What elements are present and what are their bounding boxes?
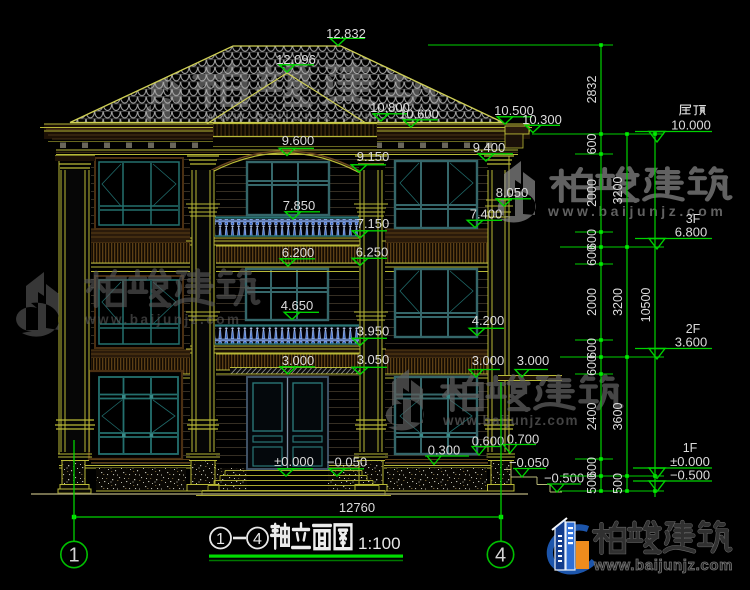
svg-text:2000: 2000 — [585, 288, 599, 316]
svg-text:www.baijunjz.com: www.baijunjz.com — [442, 413, 579, 428]
svg-text:±0.000: ±0.000 — [274, 454, 314, 469]
svg-text:−0.500: −0.500 — [670, 468, 710, 483]
svg-text:10.300: 10.300 — [522, 112, 562, 127]
svg-text:2400: 2400 — [585, 403, 599, 431]
svg-text:10500: 10500 — [639, 288, 653, 323]
svg-text:1: 1 — [68, 545, 79, 567]
svg-text:0.300: 0.300 — [428, 443, 461, 458]
svg-text:7.400: 7.400 — [470, 207, 503, 222]
svg-text:−0.050: −0.050 — [509, 455, 549, 470]
svg-text:12.096: 12.096 — [276, 52, 316, 67]
svg-text:600: 600 — [585, 134, 599, 155]
svg-text:1: 1 — [216, 531, 225, 548]
svg-text:3.000: 3.000 — [282, 353, 315, 368]
svg-text:6.800: 6.800 — [675, 225, 708, 240]
svg-text:6.200: 6.200 — [282, 245, 315, 260]
svg-text:2000: 2000 — [585, 179, 599, 207]
svg-text:4: 4 — [495, 545, 506, 567]
svg-text:6.250: 6.250 — [356, 245, 389, 260]
svg-text:9.600: 9.600 — [282, 133, 315, 148]
svg-text:3.000: 3.000 — [472, 353, 505, 368]
svg-text:500: 500 — [611, 473, 625, 494]
svg-text:10.600: 10.600 — [399, 107, 439, 122]
svg-text:3600: 3600 — [611, 403, 625, 431]
svg-text:−0.500: −0.500 — [544, 471, 584, 486]
svg-text:1F: 1F — [683, 441, 698, 455]
svg-text:3.600: 3.600 — [675, 335, 708, 350]
svg-text:4: 4 — [253, 531, 262, 548]
svg-text:4.650: 4.650 — [281, 298, 314, 313]
svg-text:7.150: 7.150 — [357, 216, 390, 231]
svg-text:3200: 3200 — [611, 288, 625, 316]
svg-text:8.050: 8.050 — [496, 185, 529, 200]
svg-text:www.baijunjz.com: www.baijunjz.com — [84, 312, 242, 327]
svg-text:1:100: 1:100 — [358, 534, 401, 553]
svg-text:3200: 3200 — [611, 177, 625, 205]
svg-text:9.400: 9.400 — [473, 140, 506, 155]
svg-text:600: 600 — [585, 245, 599, 266]
svg-text:600: 600 — [585, 355, 599, 376]
svg-text:4.200: 4.200 — [472, 313, 505, 328]
svg-text:12.832: 12.832 — [326, 26, 366, 41]
svg-text:0.700: 0.700 — [507, 432, 540, 447]
svg-text:0.600: 0.600 — [472, 434, 505, 449]
svg-text:−0.050: −0.050 — [327, 455, 367, 470]
svg-text:www.baijunjz.com: www.baijunjz.com — [593, 557, 733, 574]
svg-text:10.000: 10.000 — [671, 118, 711, 133]
svg-text:7.850: 7.850 — [283, 198, 316, 213]
svg-text:3.950: 3.950 — [357, 324, 390, 339]
svg-text:2832: 2832 — [585, 76, 599, 104]
svg-text:500: 500 — [585, 473, 599, 494]
svg-text:3.050: 3.050 — [357, 352, 390, 367]
svg-text:12760: 12760 — [339, 500, 375, 515]
svg-text:9.150: 9.150 — [357, 149, 390, 164]
svg-text:3.000: 3.000 — [517, 353, 550, 368]
